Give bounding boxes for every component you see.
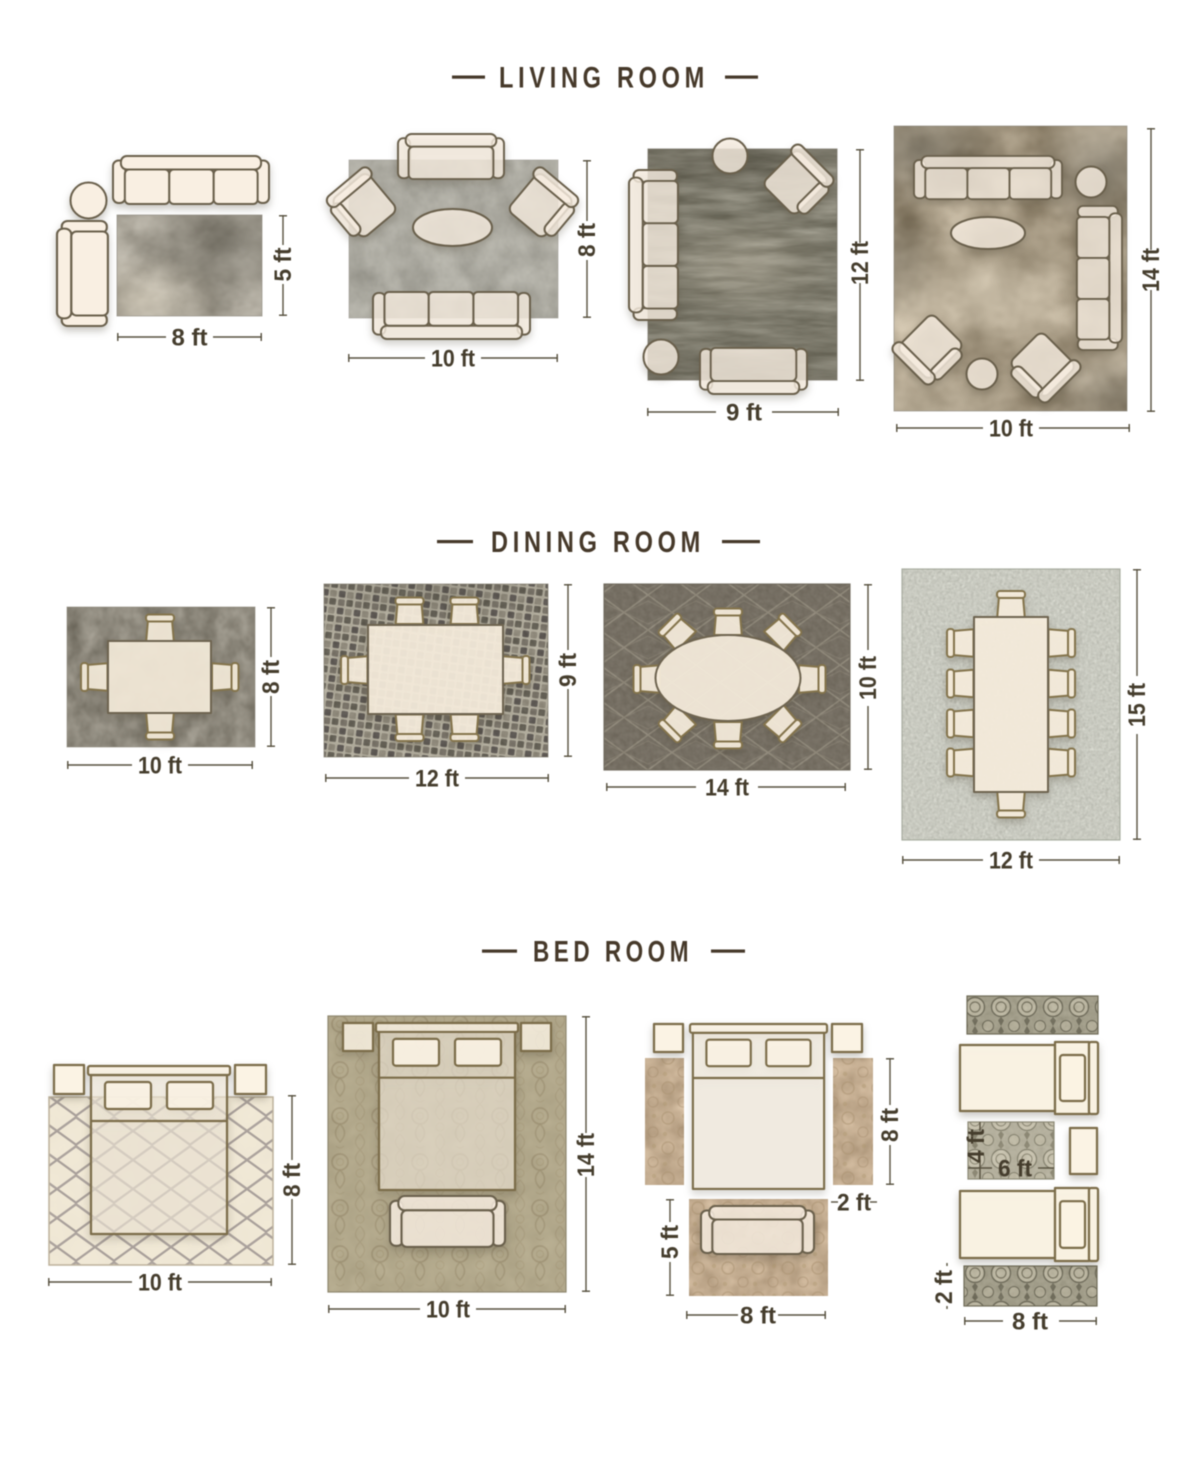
svg-text:10 ft: 10 ft xyxy=(855,656,882,700)
svg-text:8 ft: 8 ft xyxy=(740,1303,776,1330)
svg-text:8 ft: 8 ft xyxy=(574,223,601,257)
svg-text:8 ft: 8 ft xyxy=(1012,1309,1048,1336)
svg-text:15 ft: 15 ft xyxy=(1124,683,1151,727)
svg-text:10 ft: 10 ft xyxy=(426,1297,470,1324)
svg-text:10 ft: 10 ft xyxy=(989,416,1033,443)
svg-text:5 ft: 5 ft xyxy=(657,1225,684,1259)
svg-text:8 ft: 8 ft xyxy=(279,1163,306,1197)
svg-text:LIVING ROOM: LIVING ROOM xyxy=(499,62,709,95)
svg-text:BED ROOM: BED ROOM xyxy=(533,936,693,969)
svg-text:4 ft: 4 ft xyxy=(963,1129,990,1163)
svg-text:DINING ROOM: DINING ROOM xyxy=(491,526,705,559)
svg-text:6 ft: 6 ft xyxy=(998,1156,1032,1183)
svg-text:10 ft: 10 ft xyxy=(138,753,182,780)
svg-text:12 ft: 12 ft xyxy=(989,848,1033,875)
svg-text:9 ft: 9 ft xyxy=(726,400,762,427)
svg-text:14 ft: 14 ft xyxy=(705,775,749,802)
svg-text:12 ft: 12 ft xyxy=(847,241,874,285)
svg-text:5 ft: 5 ft xyxy=(270,248,297,282)
svg-text:10 ft: 10 ft xyxy=(138,1270,182,1297)
svg-text:8 ft: 8 ft xyxy=(172,325,208,352)
svg-text:10 ft: 10 ft xyxy=(431,346,475,373)
svg-text:8 ft: 8 ft xyxy=(877,1108,904,1142)
svg-text:2 ft: 2 ft xyxy=(837,1190,871,1217)
svg-text:12 ft: 12 ft xyxy=(415,766,459,793)
svg-text:14 ft: 14 ft xyxy=(573,1133,600,1177)
svg-text:14 ft: 14 ft xyxy=(1138,248,1165,292)
svg-text:2 ft: 2 ft xyxy=(931,1270,958,1304)
svg-text:8 ft: 8 ft xyxy=(258,660,285,694)
svg-text:9 ft: 9 ft xyxy=(555,653,582,687)
